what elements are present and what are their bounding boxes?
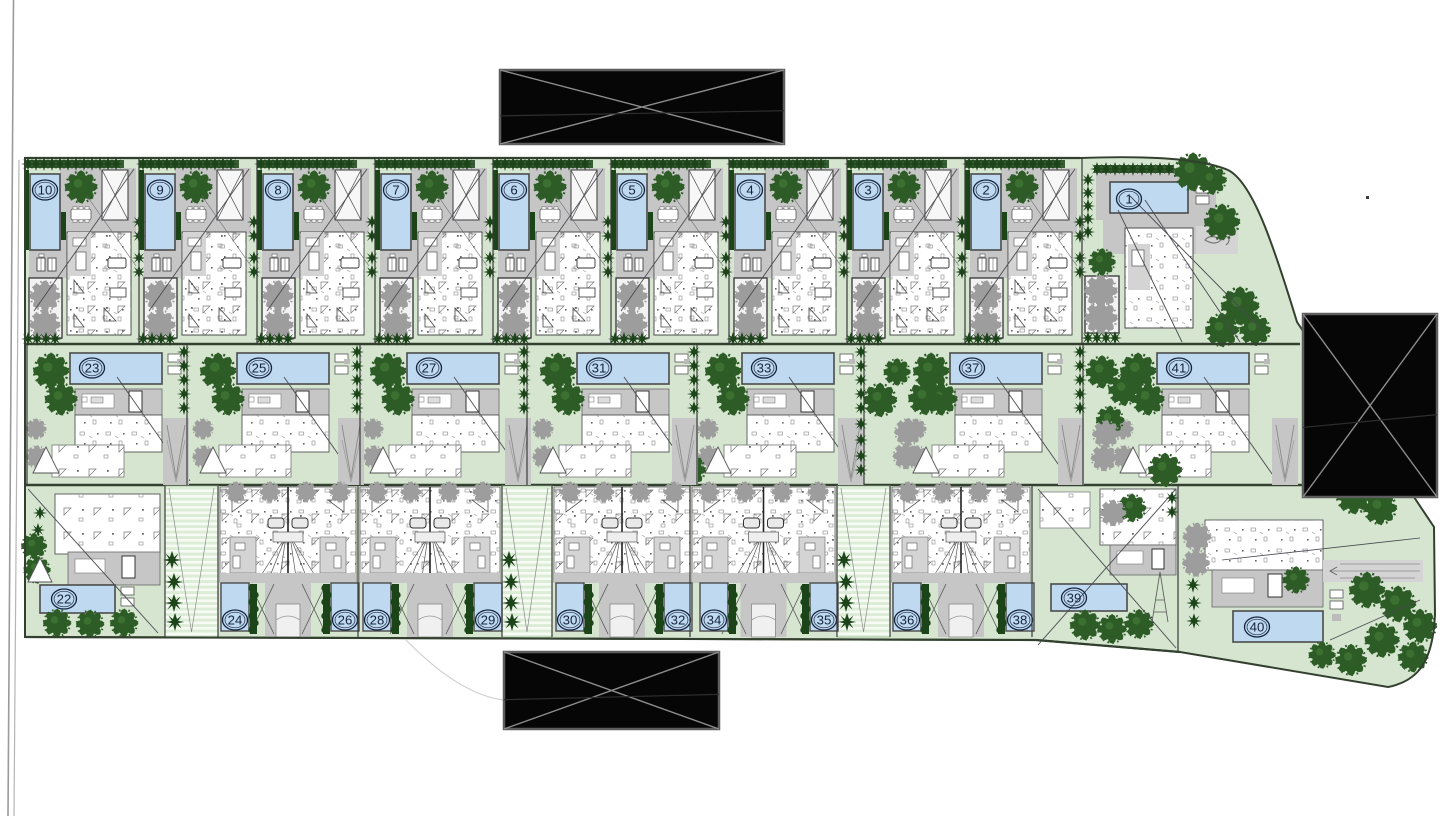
svg-text:22: 22 (57, 592, 72, 607)
svg-text:41: 41 (1172, 361, 1187, 376)
svg-text:1: 1 (1125, 192, 1132, 207)
svg-text:7: 7 (392, 183, 399, 198)
svg-text:30: 30 (563, 613, 578, 628)
svg-text:24: 24 (228, 613, 243, 628)
svg-text:35: 35 (817, 613, 832, 628)
svg-text:10: 10 (38, 183, 53, 198)
svg-text:37: 37 (965, 361, 980, 376)
svg-text:25: 25 (252, 361, 267, 376)
svg-text:31: 31 (592, 361, 607, 376)
svg-text:26: 26 (338, 613, 353, 628)
svg-text:8: 8 (274, 183, 281, 198)
svg-text:2: 2 (982, 183, 989, 198)
svg-text:38: 38 (1013, 613, 1028, 628)
svg-text:40: 40 (1250, 620, 1265, 635)
svg-text:9: 9 (156, 183, 163, 198)
svg-text:28: 28 (370, 613, 385, 628)
svg-text:4: 4 (746, 183, 753, 198)
svg-text:27: 27 (422, 361, 437, 376)
svg-text:34: 34 (707, 613, 722, 628)
svg-text:3: 3 (864, 183, 871, 198)
svg-text:33: 33 (757, 361, 772, 376)
svg-text:39: 39 (1067, 591, 1082, 606)
svg-text:36: 36 (900, 613, 915, 628)
svg-text:5: 5 (628, 183, 635, 198)
svg-text:32: 32 (671, 613, 686, 628)
svg-text:6: 6 (510, 183, 517, 198)
svg-text:29: 29 (481, 613, 496, 628)
svg-text:23: 23 (85, 361, 100, 376)
